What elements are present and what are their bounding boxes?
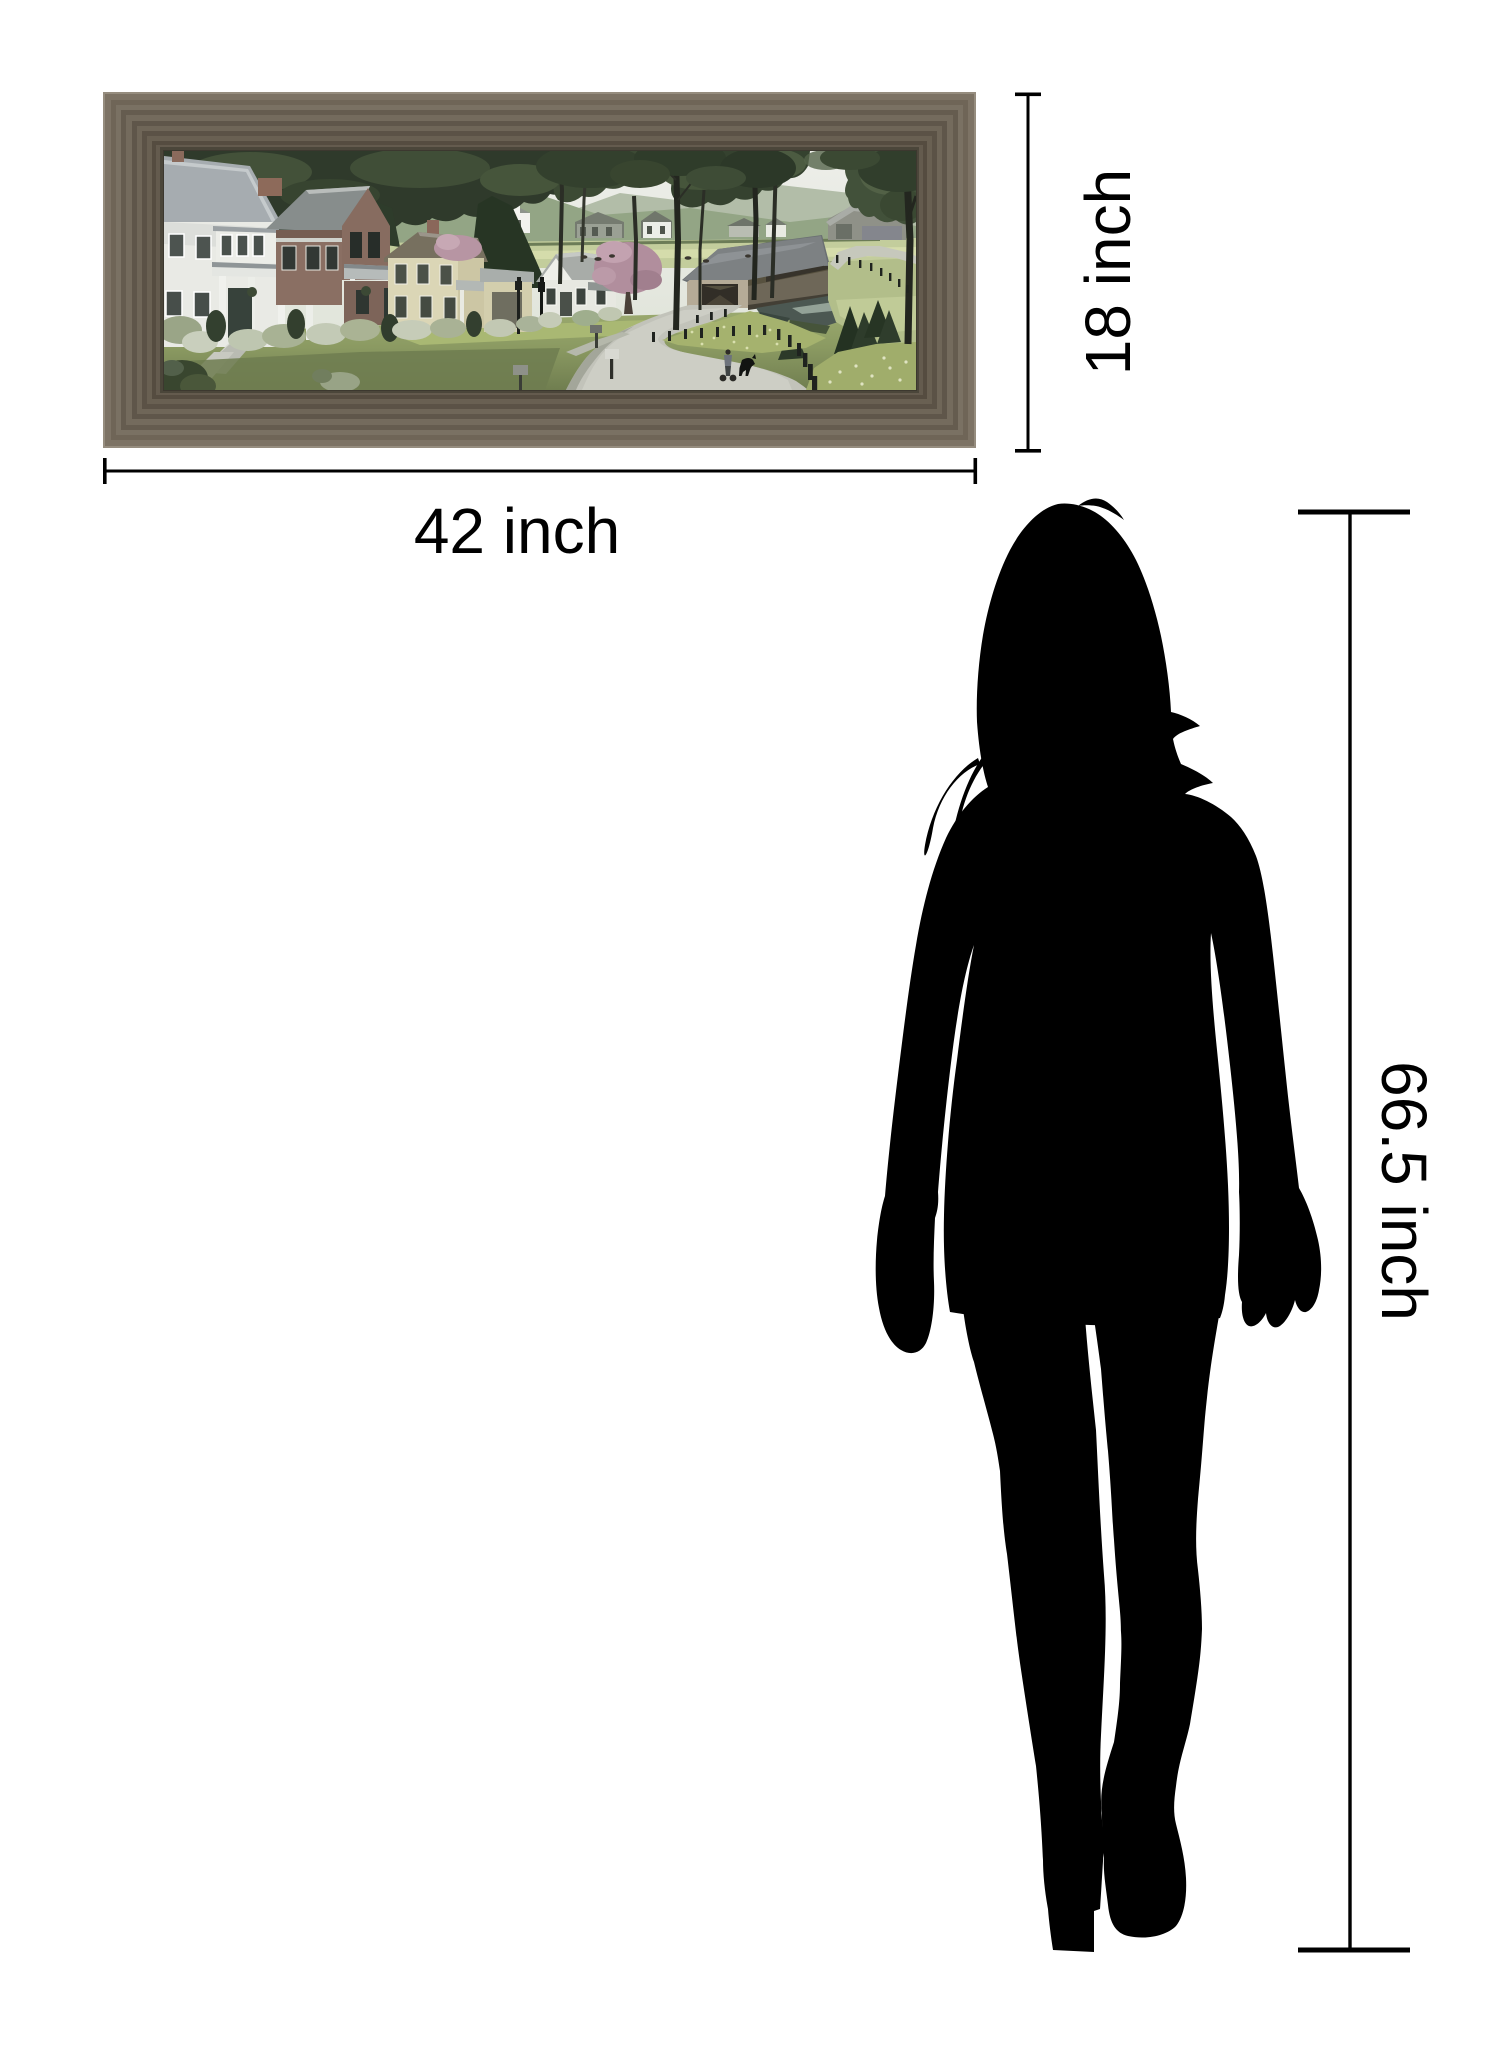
svg-text:66.5 inch: 66.5 inch [1368, 1061, 1440, 1321]
svg-text:42 inch: 42 inch [414, 495, 620, 567]
svg-text:18 inch: 18 inch [1072, 169, 1144, 375]
